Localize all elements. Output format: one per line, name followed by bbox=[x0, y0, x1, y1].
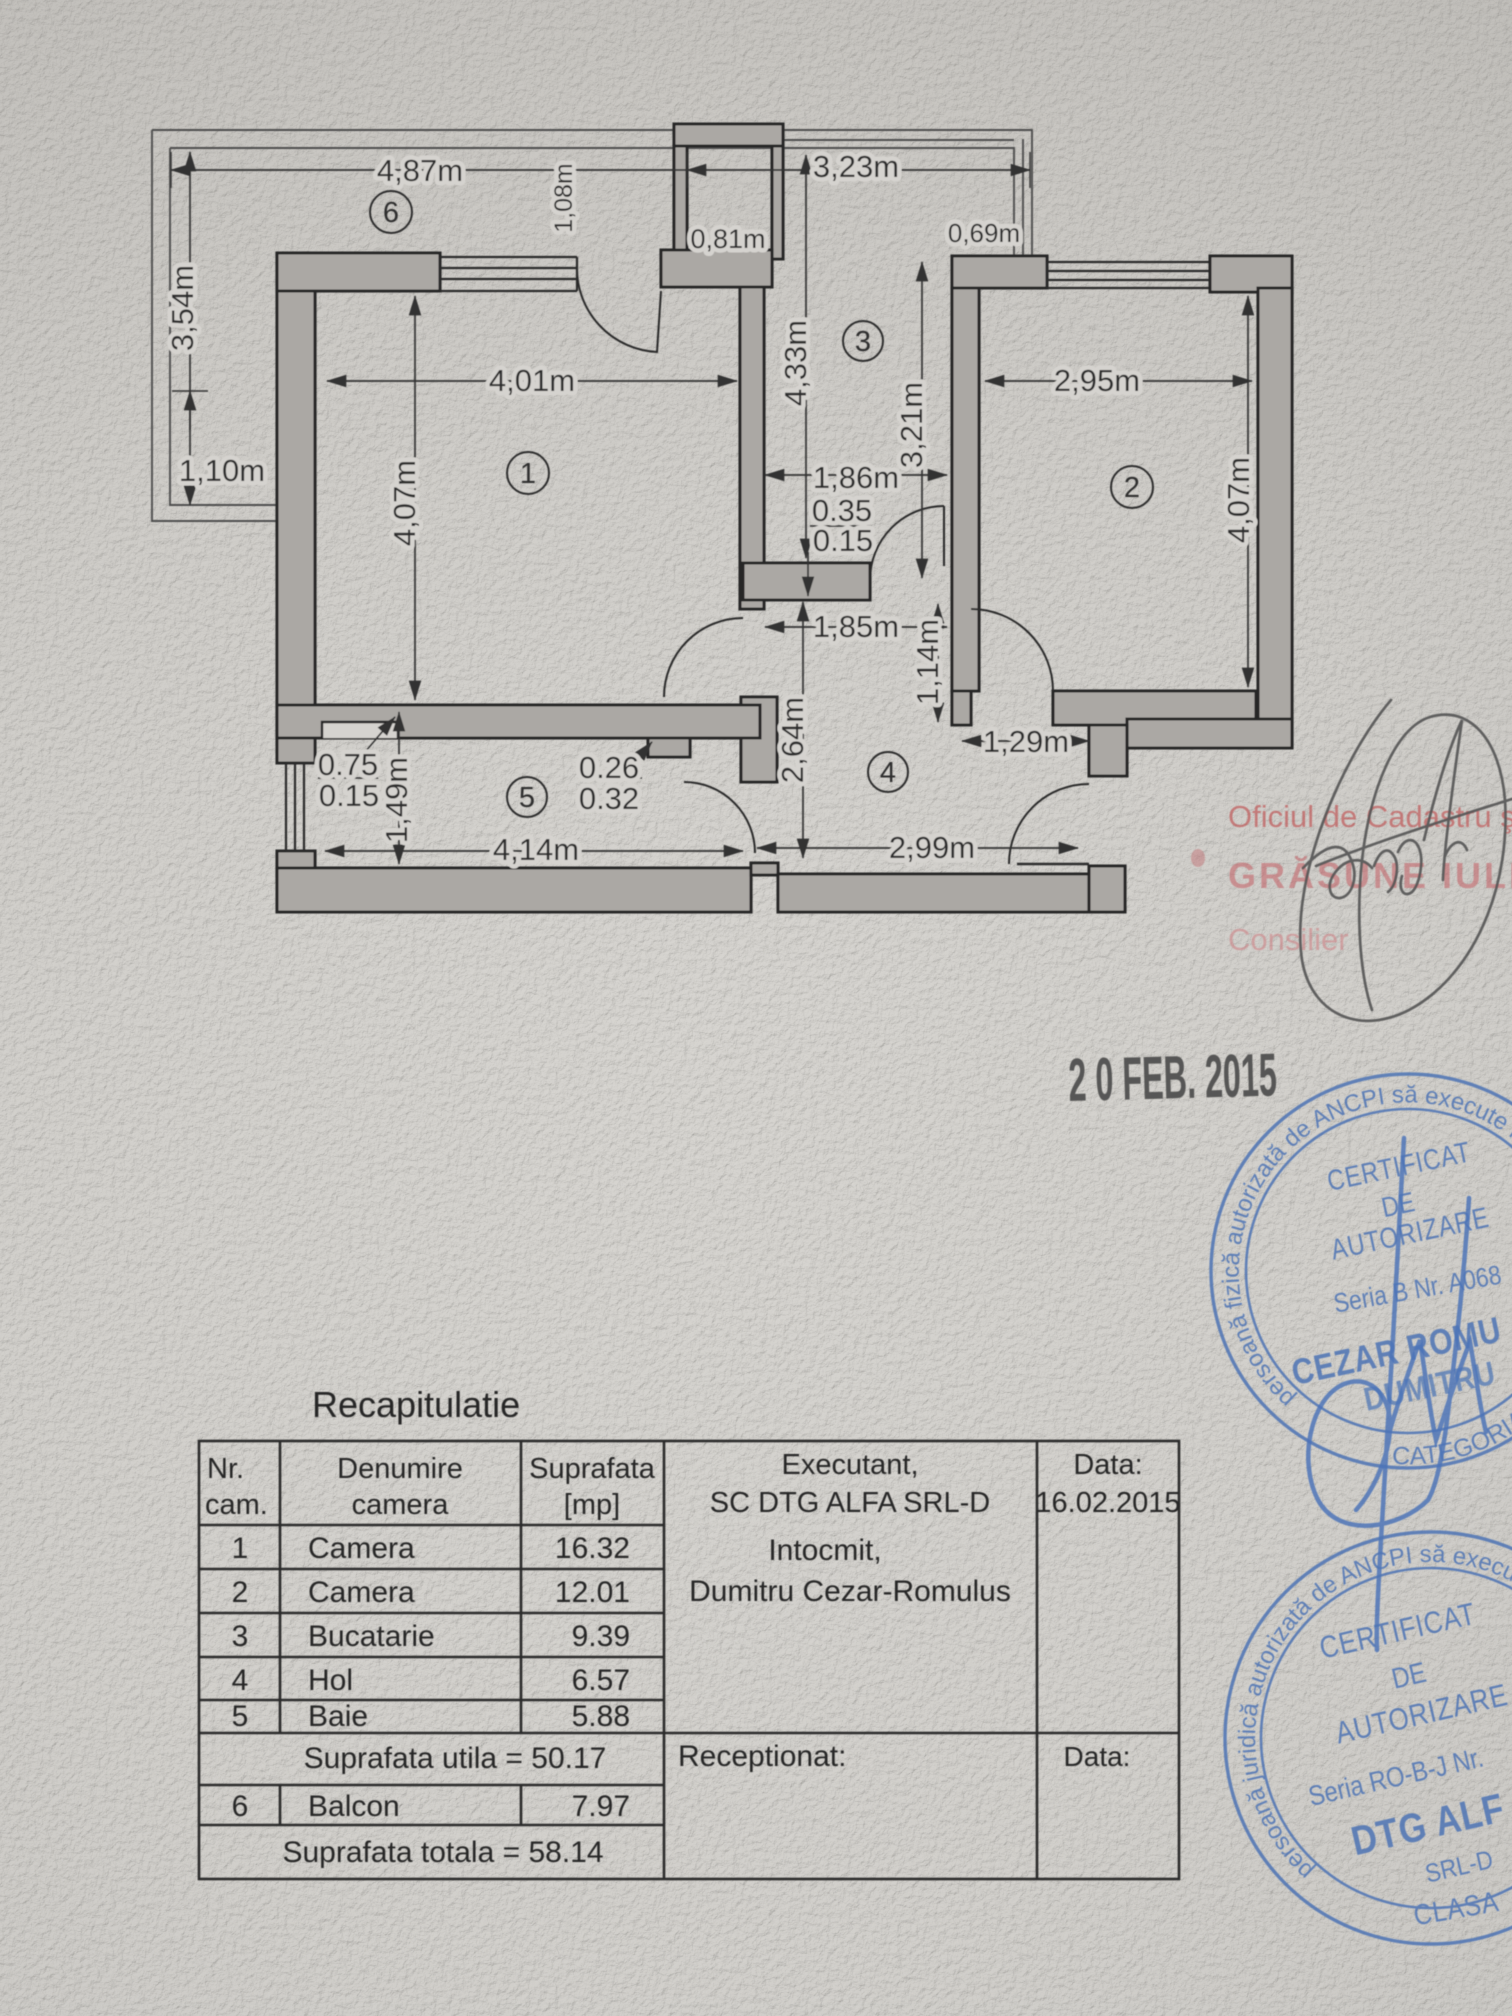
svg-text:0,81m: 0,81m bbox=[690, 224, 765, 254]
svg-text:5: 5 bbox=[519, 782, 535, 814]
svg-text:1: 1 bbox=[232, 1532, 249, 1565]
svg-text:Camera: Camera bbox=[308, 1532, 415, 1565]
svg-text:0.15: 0.15 bbox=[319, 778, 379, 813]
svg-text:6: 6 bbox=[232, 1790, 249, 1823]
svg-text:Bucatarie: Bucatarie bbox=[308, 1620, 435, 1653]
svg-text:0.32: 0.32 bbox=[579, 781, 639, 816]
svg-text:1,86m: 1,86m bbox=[813, 460, 899, 495]
svg-text:0.15: 0.15 bbox=[813, 523, 873, 558]
svg-text:Receptionat:: Receptionat: bbox=[678, 1740, 846, 1773]
svg-text:Nr.: Nr. bbox=[207, 1453, 244, 1485]
svg-text:SC DTG ALFA SRL-D: SC DTG ALFA SRL-D bbox=[710, 1487, 990, 1519]
svg-text:3,23m: 3,23m bbox=[813, 149, 899, 184]
svg-text:4: 4 bbox=[232, 1664, 249, 1697]
svg-text:2,64m: 2,64m bbox=[775, 697, 810, 783]
svg-text:5: 5 bbox=[232, 1700, 249, 1733]
svg-text:12.01: 12.01 bbox=[555, 1576, 630, 1609]
svg-text:Executant,: Executant, bbox=[781, 1449, 918, 1481]
svg-text:1: 1 bbox=[520, 458, 536, 490]
svg-text:cam.: cam. bbox=[205, 1489, 268, 1521]
svg-text:2 0 FEB. 2015: 2 0 FEB. 2015 bbox=[1068, 1042, 1278, 1115]
svg-text:Camera: Camera bbox=[308, 1576, 415, 1609]
svg-text:7.97: 7.97 bbox=[572, 1790, 630, 1823]
svg-text:1,10m: 1,10m bbox=[179, 453, 265, 488]
svg-text:Hol: Hol bbox=[308, 1664, 353, 1697]
svg-text:4,87m: 4,87m bbox=[377, 153, 463, 188]
svg-text:Suprafata utila = 50.17: Suprafata utila = 50.17 bbox=[304, 1742, 607, 1775]
svg-text:4,14m: 4,14m bbox=[493, 832, 579, 867]
svg-text:3,21m: 3,21m bbox=[894, 382, 929, 468]
svg-text:4: 4 bbox=[880, 757, 896, 789]
svg-text:Consilier: Consilier bbox=[1228, 922, 1349, 957]
svg-text:1,85m: 1,85m bbox=[813, 609, 899, 644]
svg-text:5.88: 5.88 bbox=[572, 1700, 630, 1733]
svg-text:0,69m: 0,69m bbox=[948, 218, 1020, 248]
svg-text:Denumire: Denumire bbox=[337, 1453, 463, 1485]
svg-text:[mp]: [mp] bbox=[564, 1489, 620, 1521]
svg-text:Recapitulatie: Recapitulatie bbox=[312, 1384, 520, 1425]
svg-text:camera: camera bbox=[352, 1489, 450, 1521]
svg-text:16.02.2015: 16.02.2015 bbox=[1035, 1487, 1180, 1519]
svg-text:1,14m: 1,14m bbox=[910, 619, 945, 705]
svg-text:2,99m: 2,99m bbox=[889, 830, 975, 865]
svg-text:Suprafata totala = 58.14: Suprafata totala = 58.14 bbox=[282, 1836, 603, 1869]
svg-text:16.32: 16.32 bbox=[555, 1532, 630, 1565]
svg-text:6.57: 6.57 bbox=[572, 1664, 630, 1697]
svg-text:4,01m: 4,01m bbox=[489, 363, 575, 398]
svg-text:Dumitru Cezar-Romulus: Dumitru Cezar-Romulus bbox=[689, 1575, 1011, 1608]
svg-text:2: 2 bbox=[232, 1576, 249, 1609]
svg-text:4,33m: 4,33m bbox=[778, 320, 813, 406]
svg-text:3: 3 bbox=[232, 1620, 249, 1653]
svg-text:1,08m: 1,08m bbox=[550, 163, 578, 232]
svg-text:Suprafata: Suprafata bbox=[529, 1453, 656, 1485]
svg-text:0.26: 0.26 bbox=[579, 750, 639, 785]
svg-text:6: 6 bbox=[383, 197, 399, 229]
svg-text:3: 3 bbox=[855, 326, 871, 358]
svg-text:1,49m: 1,49m bbox=[379, 757, 414, 843]
svg-text:3,54m: 3,54m bbox=[165, 265, 200, 351]
svg-text:2: 2 bbox=[1124, 472, 1140, 504]
svg-text:0.75: 0.75 bbox=[318, 747, 378, 782]
svg-text:Intocmit,: Intocmit, bbox=[768, 1534, 881, 1567]
svg-text:4,07m: 4,07m bbox=[1221, 457, 1256, 543]
svg-text:2,95m: 2,95m bbox=[1054, 363, 1140, 398]
svg-text:1,29m: 1,29m bbox=[983, 724, 1069, 759]
svg-text:Baie: Baie bbox=[308, 1700, 368, 1733]
svg-text:4,07m: 4,07m bbox=[387, 460, 422, 546]
svg-text:Data:: Data: bbox=[1064, 1741, 1131, 1772]
svg-text:Data:: Data: bbox=[1073, 1449, 1142, 1481]
svg-text:Balcon: Balcon bbox=[308, 1790, 400, 1823]
svg-text:9.39: 9.39 bbox=[572, 1620, 630, 1653]
svg-text:GRĂSUNE IULI: GRĂSUNE IULI bbox=[1228, 855, 1512, 896]
